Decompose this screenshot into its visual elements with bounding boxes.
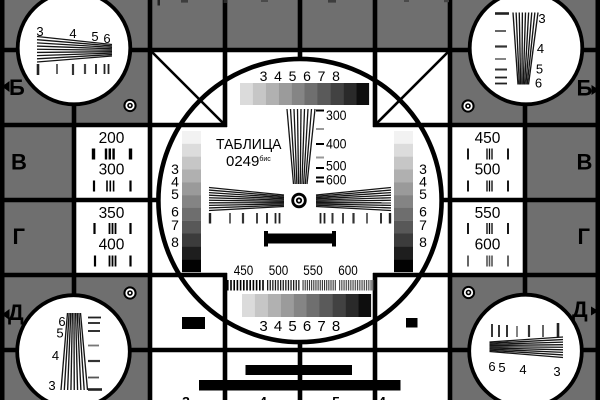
svg-text:4: 4	[519, 362, 526, 377]
svg-text:300: 300	[326, 107, 347, 123]
svg-text:7: 7	[171, 217, 179, 233]
svg-text:3: 3	[553, 364, 560, 379]
svg-text:5: 5	[288, 318, 296, 335]
svg-text:600: 600	[326, 172, 347, 188]
svg-text:7: 7	[317, 318, 325, 335]
svg-text:5: 5	[289, 68, 297, 84]
svg-text:4: 4	[274, 68, 282, 84]
svg-text:450: 450	[475, 130, 501, 147]
svg-text:В: В	[11, 150, 27, 175]
svg-text:5: 5	[332, 394, 340, 400]
svg-text:500: 500	[269, 263, 289, 278]
svg-text:Г: Г	[13, 224, 26, 249]
svg-text:5: 5	[536, 62, 543, 77]
svg-text:ТАБЛИЦА: ТАБЛИЦА	[216, 136, 282, 153]
svg-text:6: 6	[103, 31, 110, 46]
svg-text:5: 5	[498, 360, 505, 375]
svg-text:4: 4	[378, 394, 386, 400]
svg-text:400: 400	[99, 237, 125, 254]
svg-text:3: 3	[36, 24, 43, 39]
svg-text:6: 6	[303, 318, 311, 335]
svg-text:Д: Д	[572, 297, 588, 322]
svg-text:7: 7	[318, 68, 326, 84]
svg-text:5: 5	[91, 29, 98, 44]
svg-text:3: 3	[182, 394, 190, 400]
svg-text:Б: Б	[577, 76, 593, 101]
svg-text:8: 8	[419, 234, 427, 250]
svg-text:3: 3	[260, 68, 268, 84]
svg-text:500: 500	[475, 162, 501, 179]
svg-text:4: 4	[69, 26, 76, 41]
svg-text:300: 300	[99, 162, 125, 179]
svg-text:4: 4	[52, 348, 59, 363]
svg-text:8: 8	[332, 68, 340, 84]
svg-text:В: В	[577, 150, 593, 175]
svg-text:350: 350	[99, 205, 125, 222]
svg-text:7: 7	[419, 217, 427, 233]
svg-text:3: 3	[538, 11, 545, 26]
svg-text:4: 4	[537, 41, 544, 56]
svg-text:Д: Д	[8, 300, 24, 325]
svg-text:5: 5	[419, 186, 427, 202]
svg-text:Г: Г	[578, 224, 591, 249]
svg-text:200: 200	[99, 130, 125, 147]
svg-text:3: 3	[259, 318, 267, 335]
svg-text:6: 6	[535, 76, 542, 91]
svg-text:600: 600	[475, 237, 501, 254]
svg-text:400: 400	[326, 136, 347, 152]
svg-text:550: 550	[303, 263, 323, 278]
svg-text:5: 5	[56, 326, 63, 341]
svg-text:5: 5	[171, 186, 179, 202]
svg-text:6: 6	[488, 359, 495, 374]
svg-text:550: 550	[475, 205, 501, 222]
svg-text:8: 8	[171, 234, 179, 250]
svg-text:8: 8	[332, 318, 340, 335]
svg-text:600: 600	[338, 263, 358, 278]
svg-text:3: 3	[48, 378, 55, 393]
svg-text:Б: Б	[9, 75, 25, 100]
svg-text:450: 450	[234, 263, 254, 278]
svg-text:4: 4	[274, 318, 282, 335]
svg-text:6: 6	[303, 68, 311, 84]
svg-text:4: 4	[259, 394, 267, 400]
